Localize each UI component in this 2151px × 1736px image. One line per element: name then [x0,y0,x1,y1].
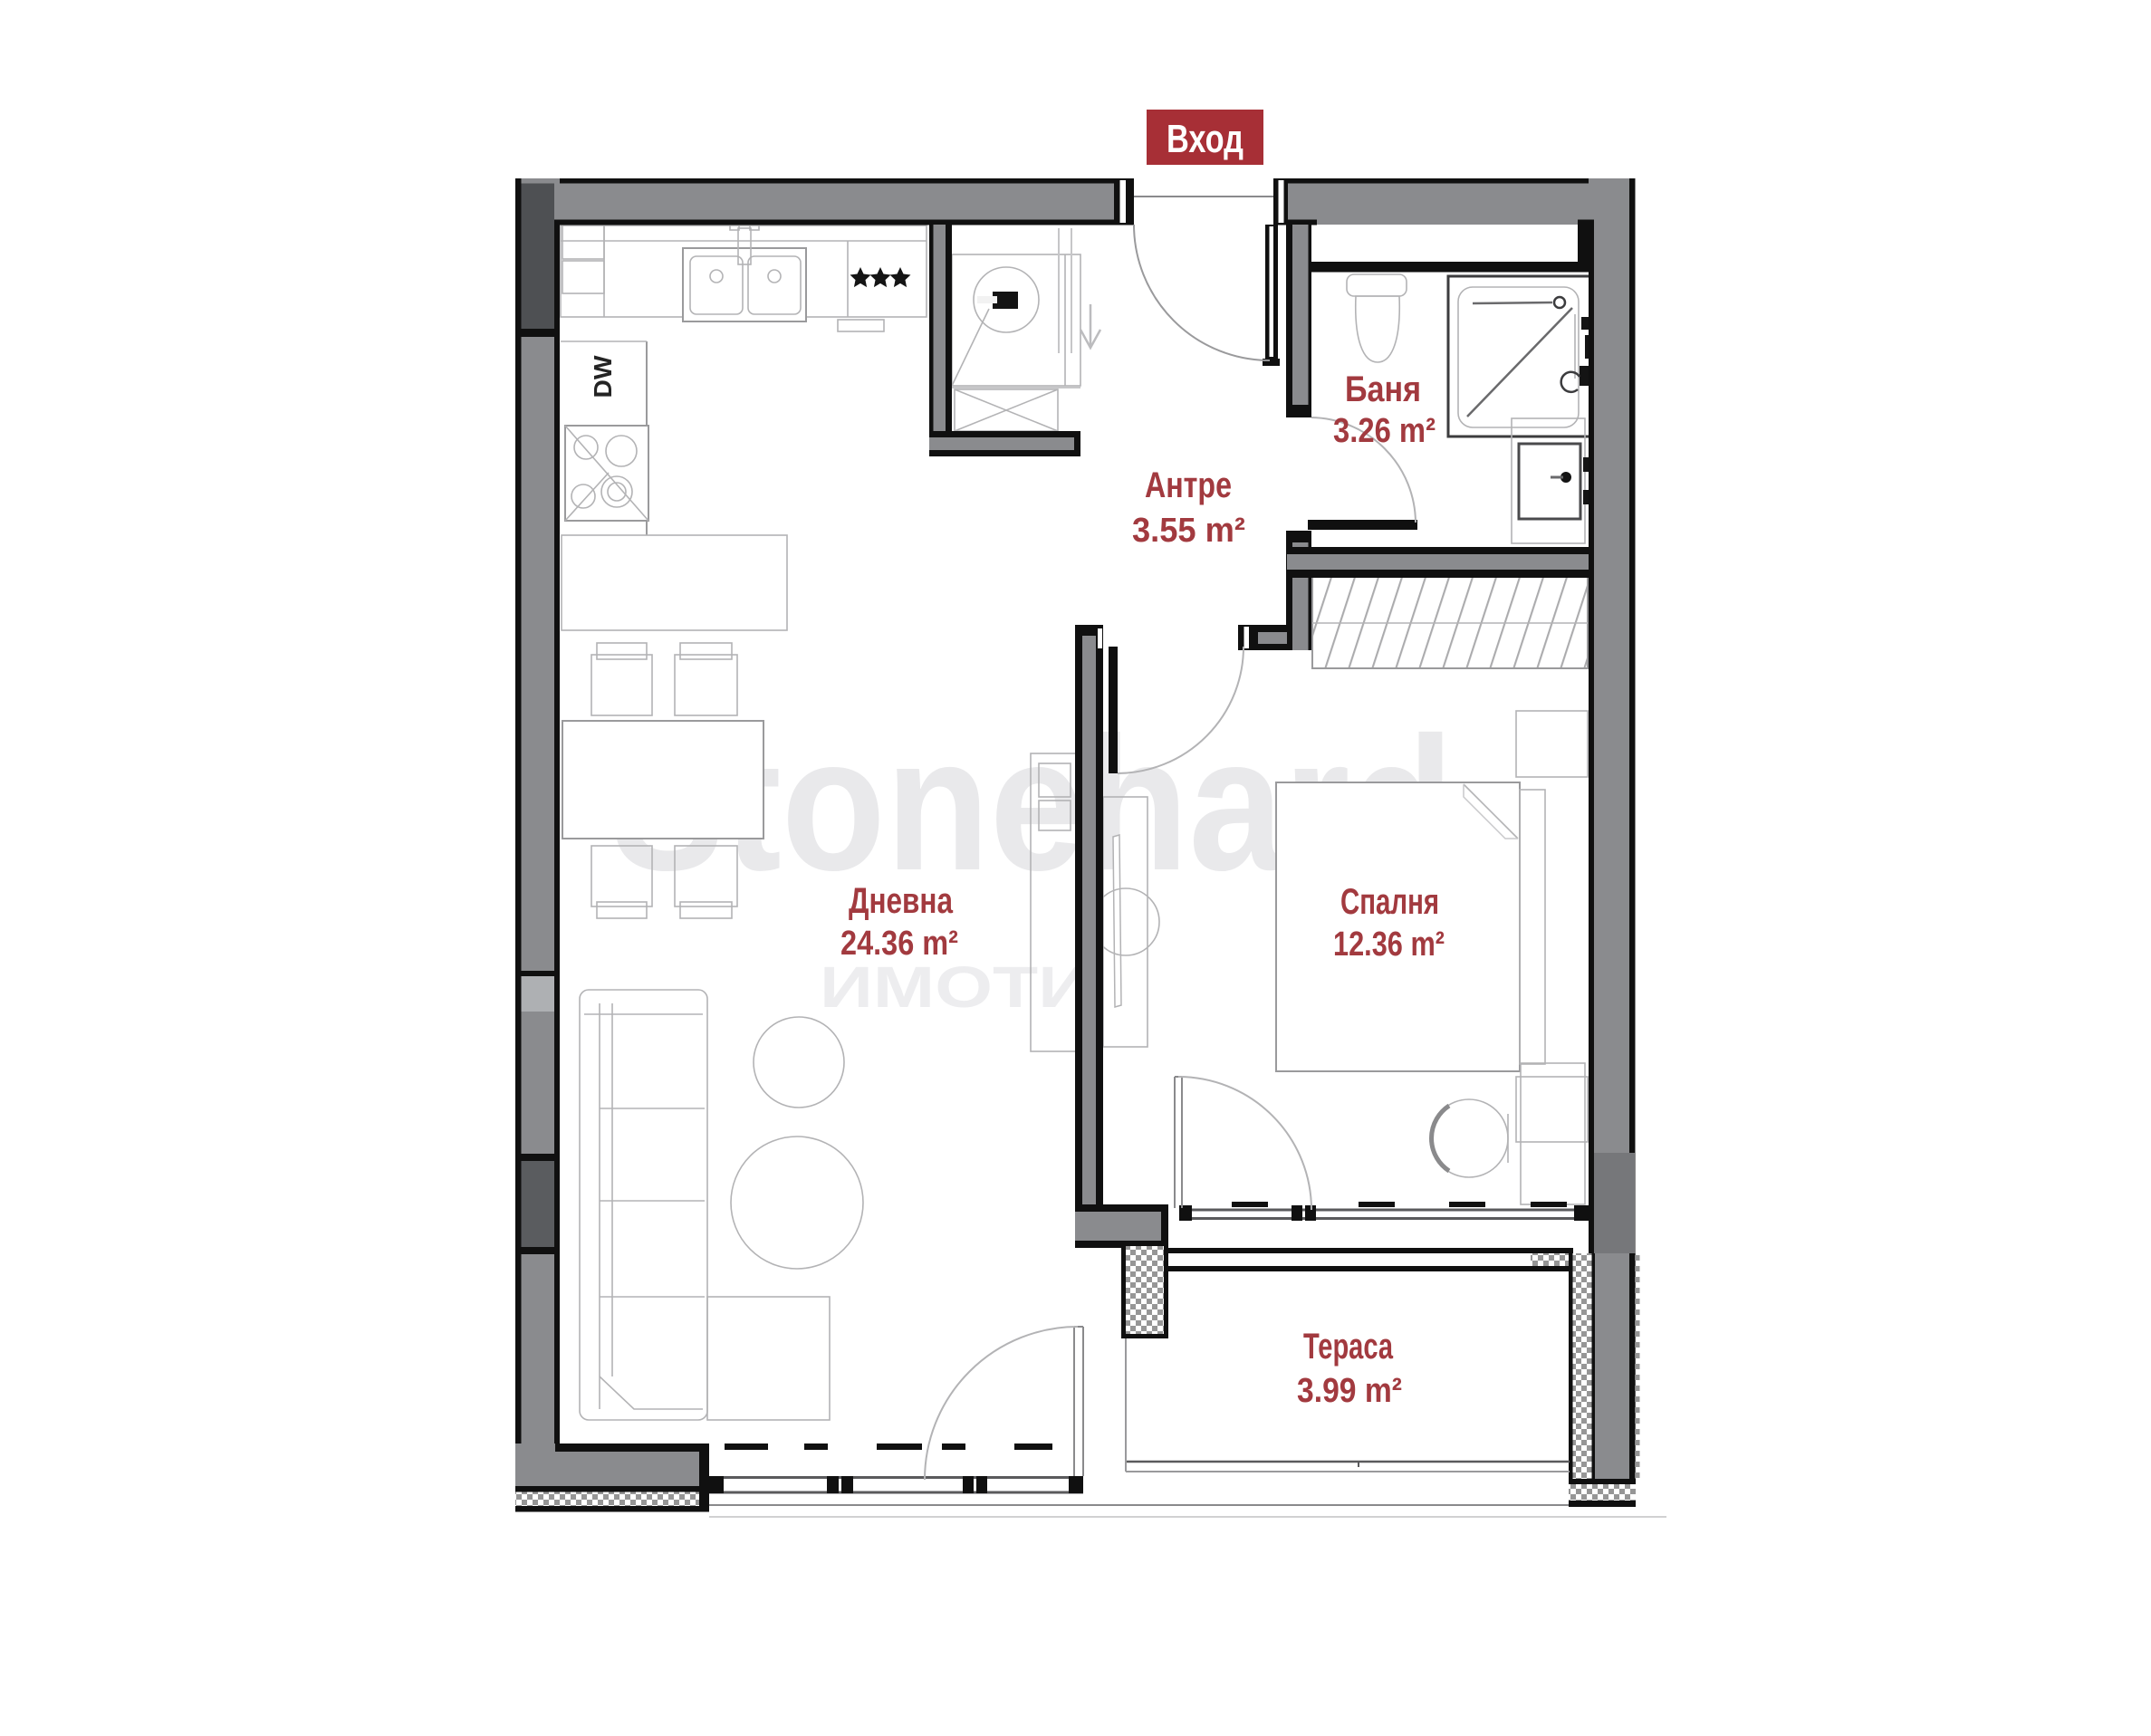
svg-text:ИМОТИ: ИМОТИ [820,954,1091,1020]
svg-text:Тераса: Тераса [1303,1327,1394,1367]
svg-text:DW: DW [589,355,617,398]
svg-text:24.36 m²: 24.36 m² [840,925,958,963]
svg-text:Дневна: Дневна [849,881,954,921]
svg-text:3.55 m²: 3.55 m² [1132,512,1245,550]
svg-text:3.99 m²: 3.99 m² [1297,1372,1402,1410]
svg-text:Баня: Баня [1345,369,1421,409]
svg-text:Вход: Вход [1167,117,1244,161]
svg-text:Антре: Антре [1145,465,1232,505]
svg-text:3.26 m²: 3.26 m² [1333,412,1436,450]
svg-text:12.36 m²: 12.36 m² [1333,926,1445,964]
svg-text:Спалня: Спалня [1340,882,1439,922]
